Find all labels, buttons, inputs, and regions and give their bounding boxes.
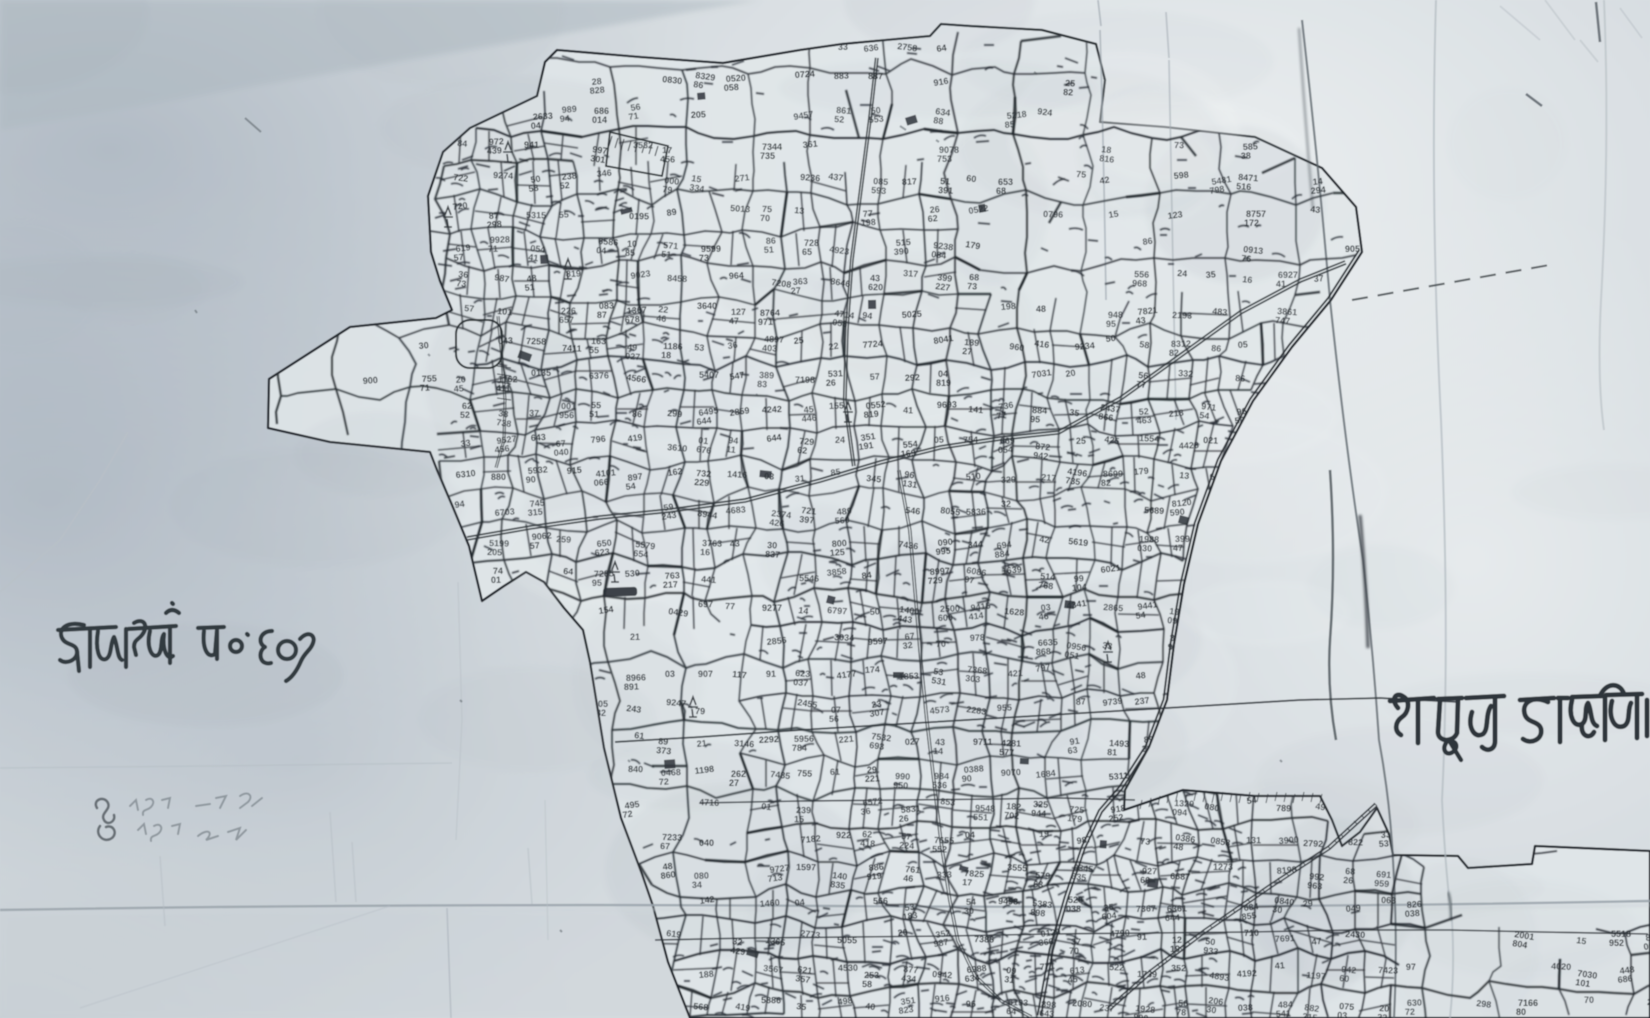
svg-text:47: 47 [1173, 543, 1183, 553]
svg-text:933: 933 [1203, 945, 1219, 957]
svg-text:56: 56 [829, 714, 839, 724]
svg-text:35: 35 [796, 1001, 807, 1012]
svg-text:891: 891 [624, 681, 639, 692]
svg-text:735: 735 [760, 151, 775, 161]
svg-text:4573: 4573 [929, 704, 950, 716]
svg-text:77: 77 [725, 601, 735, 611]
svg-text:101: 101 [1575, 977, 1591, 989]
svg-text:217: 217 [663, 579, 679, 590]
svg-text:96: 96 [966, 999, 976, 1009]
svg-text:1597: 1597 [796, 862, 816, 872]
svg-text:416: 416 [1034, 338, 1050, 350]
svg-text:038: 038 [1066, 904, 1081, 914]
svg-text:3532: 3532 [633, 140, 653, 150]
svg-text:237: 237 [1134, 695, 1150, 707]
svg-text:3610: 3610 [667, 442, 688, 454]
svg-text:855: 855 [1241, 910, 1257, 922]
svg-text:566: 566 [873, 896, 888, 906]
svg-text:24: 24 [835, 435, 845, 445]
svg-text:0195: 0195 [629, 211, 649, 221]
svg-text:014: 014 [592, 115, 607, 125]
svg-text:3146: 3146 [734, 738, 755, 749]
svg-text:72: 72 [1405, 1007, 1415, 1017]
svg-text:42: 42 [1099, 175, 1110, 186]
svg-text:4020: 4020 [1551, 961, 1572, 972]
svg-text:6797: 6797 [827, 605, 848, 616]
svg-text:90: 90 [961, 773, 972, 784]
svg-text:956: 956 [559, 410, 574, 420]
svg-text:702: 702 [1004, 810, 1020, 821]
svg-text:73: 73 [1174, 140, 1184, 150]
svg-text:05: 05 [934, 434, 945, 445]
svg-text:54: 54 [1135, 610, 1146, 621]
svg-text:221: 221 [838, 733, 854, 745]
svg-text:7386: 7386 [974, 934, 994, 945]
svg-text:963: 963 [1307, 880, 1323, 892]
svg-text:551: 551 [973, 812, 988, 823]
svg-text:3555: 3555 [1007, 862, 1028, 873]
svg-text:51: 51 [764, 244, 775, 255]
svg-text:90: 90 [525, 474, 536, 485]
svg-text:634: 634 [964, 972, 980, 984]
svg-text:73: 73 [456, 278, 467, 289]
svg-text:654: 654 [633, 548, 649, 560]
svg-text:20: 20 [1065, 368, 1076, 379]
svg-text:426: 426 [769, 517, 785, 529]
svg-text:676: 676 [696, 444, 712, 456]
svg-text:71: 71 [420, 382, 431, 393]
svg-text:89: 89 [666, 207, 677, 218]
svg-text:5689: 5689 [1144, 505, 1165, 516]
svg-text:446: 446 [801, 412, 817, 424]
svg-text:038: 038 [1238, 1002, 1254, 1013]
svg-text:5055: 5055 [837, 935, 857, 945]
svg-text:771: 771 [1039, 961, 1055, 972]
svg-text:298: 298 [486, 219, 502, 230]
svg-text:643: 643 [530, 432, 546, 443]
svg-text:86: 86 [1142, 236, 1153, 247]
svg-text:85: 85 [625, 248, 635, 258]
svg-text:357: 357 [795, 973, 811, 985]
svg-text:9274: 9274 [493, 170, 514, 181]
svg-text:828: 828 [589, 84, 605, 96]
svg-text:63: 63 [1033, 879, 1044, 890]
svg-text:67: 67 [660, 841, 670, 851]
svg-text:729: 729 [927, 575, 943, 586]
svg-text:0942: 0942 [932, 969, 953, 980]
svg-text:94: 94 [559, 113, 570, 124]
svg-text:03: 03 [665, 669, 675, 679]
svg-text:19: 19 [1039, 829, 1049, 839]
svg-text:0830: 0830 [662, 74, 683, 86]
svg-text:51: 51 [524, 282, 535, 293]
svg-text:924: 924 [1037, 106, 1053, 118]
svg-text:57: 57 [464, 303, 475, 314]
svg-text:58: 58 [528, 183, 539, 194]
svg-text:15: 15 [1108, 209, 1119, 220]
svg-text:5315: 5315 [526, 210, 546, 220]
svg-text:71: 71 [488, 244, 498, 254]
svg-text:546: 546 [905, 505, 921, 517]
svg-text:678: 678 [624, 314, 640, 325]
svg-text:09: 09 [1167, 615, 1178, 626]
svg-text:7182: 7182 [800, 833, 821, 845]
svg-text:41: 41 [1276, 279, 1286, 289]
svg-text:5546: 5546 [799, 573, 819, 584]
svg-text:01: 01 [491, 575, 501, 585]
svg-text:38: 38 [1241, 150, 1252, 161]
svg-text:64: 64 [936, 43, 947, 54]
svg-text:70: 70 [1069, 946, 1079, 956]
svg-text:97: 97 [1406, 962, 1416, 972]
svg-text:361: 361 [802, 138, 818, 150]
svg-text:9597: 9597 [867, 636, 888, 647]
svg-text:40: 40 [865, 1001, 876, 1012]
svg-text:1639: 1639 [1001, 564, 1022, 576]
svg-text:317: 317 [903, 268, 919, 279]
svg-text:35: 35 [1069, 407, 1080, 418]
svg-text:397: 397 [799, 514, 815, 526]
svg-text:1739: 1739 [1137, 969, 1157, 979]
svg-text:568: 568 [693, 1001, 709, 1013]
svg-text:70: 70 [936, 639, 946, 649]
svg-text:3640: 3640 [697, 301, 717, 311]
svg-text:68: 68 [996, 186, 1006, 196]
svg-text:298: 298 [1476, 998, 1492, 1010]
svg-text:434: 434 [901, 973, 917, 984]
svg-text:5311: 5311 [1108, 770, 1128, 782]
svg-text:45: 45 [453, 383, 464, 394]
svg-text:738: 738 [496, 417, 512, 429]
svg-text:162: 162 [667, 466, 683, 478]
svg-text:796: 796 [590, 433, 606, 445]
svg-text:959: 959 [1374, 878, 1390, 889]
svg-text:9070: 9070 [1001, 767, 1022, 778]
svg-text:84: 84 [457, 138, 468, 149]
svg-text:2080: 2080 [1072, 998, 1093, 1009]
svg-text:7485: 7485 [770, 769, 791, 781]
svg-text:7198: 7198 [795, 375, 815, 385]
svg-text:82: 82 [1101, 478, 1111, 488]
svg-text:593: 593 [871, 185, 887, 196]
svg-text:13: 13 [794, 205, 805, 216]
svg-text:91: 91 [766, 669, 776, 679]
svg-text:816: 816 [1099, 153, 1115, 165]
svg-text:34: 34 [692, 880, 702, 890]
svg-text:3567: 3567 [763, 963, 784, 975]
svg-text:907: 907 [698, 669, 713, 679]
svg-text:58: 58 [1139, 339, 1150, 350]
svg-text:65: 65 [802, 247, 812, 257]
svg-text:4192: 4192 [1237, 968, 1258, 979]
svg-text:4790: 4790 [1109, 928, 1130, 939]
svg-text:217: 217 [1041, 472, 1057, 483]
svg-text:5886: 5886 [761, 995, 781, 1005]
svg-text:735: 735 [1065, 475, 1081, 487]
svg-text:43: 43 [1135, 315, 1146, 326]
svg-text:60: 60 [966, 173, 977, 184]
svg-text:155: 155 [829, 400, 844, 411]
svg-text:54: 54 [625, 481, 636, 492]
svg-text:7423: 7423 [1378, 965, 1398, 976]
svg-text:117: 117 [732, 669, 747, 680]
svg-text:0135: 0135 [531, 368, 551, 378]
svg-text:301: 301 [590, 153, 606, 165]
svg-text:9277: 9277 [762, 603, 782, 613]
svg-text:86: 86 [1235, 373, 1246, 384]
svg-text:084: 084 [931, 249, 947, 261]
svg-text:78: 78 [1176, 1007, 1187, 1018]
svg-text:237: 237 [1099, 1002, 1115, 1014]
svg-text:205: 205 [487, 547, 502, 558]
svg-text:968: 968 [1132, 278, 1148, 289]
svg-text:82: 82 [1063, 87, 1074, 98]
svg-text:619: 619 [666, 928, 682, 940]
svg-text:52: 52 [834, 114, 845, 125]
svg-text:32: 32 [902, 640, 913, 651]
svg-text:47: 47 [1311, 936, 1322, 947]
svg-text:2865: 2865 [1103, 602, 1124, 613]
svg-text:62: 62 [927, 213, 938, 224]
svg-text:30: 30 [1206, 1004, 1217, 1015]
svg-text:42: 42 [1039, 534, 1050, 545]
svg-text:697: 697 [698, 599, 713, 609]
svg-text:131: 131 [1246, 835, 1261, 845]
svg-text:191: 191 [858, 440, 874, 452]
svg-text:7691: 7691 [1275, 933, 1296, 944]
svg-text:516: 516 [1236, 181, 1252, 192]
svg-text:960: 960 [1009, 341, 1025, 353]
svg-text:952: 952 [1609, 938, 1624, 948]
svg-text:390: 390 [893, 246, 909, 257]
svg-text:26: 26 [1343, 875, 1354, 886]
svg-text:747: 747 [1275, 315, 1291, 326]
svg-text:552: 552 [932, 844, 947, 855]
svg-text:55: 55 [558, 209, 569, 220]
svg-text:29: 29 [1302, 898, 1313, 909]
svg-text:131: 131 [902, 478, 918, 490]
svg-text:8458: 8458 [667, 273, 688, 284]
svg-text:54: 54 [1199, 410, 1210, 421]
svg-text:71: 71 [628, 111, 639, 122]
svg-text:72: 72 [659, 776, 670, 787]
svg-text:37: 37 [529, 408, 539, 418]
svg-text:819: 819 [863, 408, 879, 420]
svg-text:536: 536 [932, 780, 947, 790]
svg-text:18: 18 [661, 350, 671, 360]
svg-text:47: 47 [729, 316, 739, 326]
svg-text:72: 72 [622, 809, 633, 820]
svg-text:553: 553 [868, 113, 884, 125]
svg-text:51: 51 [589, 409, 599, 419]
svg-text:421: 421 [1007, 668, 1023, 679]
svg-text:784: 784 [792, 743, 807, 753]
svg-text:221: 221 [865, 773, 881, 784]
svg-text:14: 14 [798, 605, 809, 616]
svg-text:040: 040 [553, 447, 569, 458]
svg-text:987: 987 [1076, 834, 1092, 846]
svg-text:049: 049 [1345, 903, 1361, 914]
svg-text:17: 17 [962, 877, 973, 888]
svg-text:941: 941 [524, 140, 539, 150]
svg-text:79: 79 [662, 184, 673, 195]
svg-text:154: 154 [598, 604, 614, 616]
svg-text:41: 41 [1274, 960, 1285, 971]
svg-text:995: 995 [935, 545, 951, 557]
svg-text:27: 27 [729, 778, 739, 788]
svg-text:644: 644 [696, 415, 712, 427]
svg-text:13: 13 [1179, 470, 1190, 481]
svg-text:64: 64 [1006, 1006, 1017, 1017]
svg-text:483: 483 [1212, 306, 1228, 318]
svg-text:053: 053 [832, 317, 848, 329]
svg-text:4683: 4683 [725, 504, 746, 516]
svg-text:30: 30 [418, 340, 429, 351]
svg-text:104: 104 [1071, 582, 1087, 593]
svg-text:686: 686 [1617, 973, 1633, 985]
svg-text:944: 944 [1031, 808, 1047, 819]
svg-text:004: 004 [1643, 940, 1650, 952]
svg-text:60: 60 [1339, 973, 1350, 984]
svg-text:720: 720 [452, 200, 468, 212]
svg-text:817: 817 [902, 176, 918, 187]
svg-text:61: 61 [830, 767, 840, 777]
svg-text:77: 77 [996, 410, 1007, 421]
svg-text:6687: 6687 [1170, 871, 1191, 882]
svg-text:315: 315 [527, 506, 543, 518]
svg-text:373: 373 [656, 745, 672, 756]
svg-text:21: 21 [696, 738, 707, 749]
svg-text:86: 86 [1211, 343, 1222, 354]
svg-text:860: 860 [660, 869, 676, 881]
svg-text:922: 922 [836, 830, 851, 840]
svg-text:303: 303 [965, 673, 981, 685]
svg-text:7258: 7258 [526, 336, 546, 347]
svg-text:753: 753 [937, 154, 952, 164]
svg-text:4242: 4242 [762, 404, 783, 415]
svg-text:95: 95 [1106, 319, 1116, 329]
svg-text:16: 16 [1242, 274, 1253, 285]
svg-text:1554: 1554 [1139, 433, 1160, 444]
svg-text:955: 955 [997, 702, 1012, 713]
svg-text:403: 403 [762, 343, 777, 354]
svg-text:87: 87 [1075, 696, 1086, 707]
svg-text:094: 094 [1172, 807, 1188, 818]
svg-text:027: 027 [905, 736, 921, 747]
svg-text:560: 560 [834, 515, 850, 526]
svg-text:33: 33 [1377, 1012, 1388, 1018]
svg-text:57: 57 [529, 540, 540, 551]
svg-text:043: 043 [498, 335, 513, 346]
svg-text:5025: 5025 [901, 309, 922, 320]
svg-text:456: 456 [660, 154, 675, 165]
svg-text:53: 53 [694, 342, 705, 353]
svg-text:063: 063 [1381, 895, 1396, 906]
svg-text:636: 636 [863, 42, 879, 54]
svg-text:9247: 9247 [666, 697, 687, 709]
svg-text:4428: 4428 [1179, 440, 1200, 451]
svg-text:819: 819 [936, 378, 951, 388]
svg-text:352: 352 [1171, 963, 1186, 973]
svg-text:95: 95 [1030, 414, 1041, 425]
svg-text:224: 224 [899, 840, 915, 851]
svg-text:26: 26 [898, 813, 909, 824]
svg-text:142: 142 [699, 894, 715, 906]
svg-text:7367: 7367 [1136, 903, 1156, 914]
svg-text:63: 63 [1067, 745, 1078, 756]
svg-text:800: 800 [1133, 1012, 1149, 1018]
svg-text:70: 70 [760, 213, 770, 223]
svg-text:36: 36 [860, 806, 871, 817]
svg-text:25: 25 [1076, 436, 1086, 446]
svg-text:880: 880 [491, 472, 506, 482]
svg-text:101: 101 [497, 306, 513, 317]
svg-text:2792: 2792 [1303, 838, 1324, 849]
svg-text:27: 27 [962, 346, 973, 357]
svg-text:598: 598 [1173, 169, 1189, 181]
svg-text:456: 456 [494, 443, 510, 455]
svg-text:1460: 1460 [759, 897, 780, 909]
svg-text:01: 01 [761, 801, 772, 812]
svg-text:46: 46 [903, 873, 914, 884]
svg-text:6310: 6310 [455, 468, 476, 480]
svg-text:600: 600 [938, 612, 953, 623]
svg-text:27: 27 [790, 285, 801, 296]
svg-text:294: 294 [1310, 184, 1326, 196]
svg-text:183: 183 [902, 910, 918, 922]
svg-text:218: 218 [1168, 407, 1184, 419]
svg-text:040: 040 [699, 838, 714, 848]
svg-text:84: 84 [861, 570, 872, 581]
svg-text:62: 62 [797, 445, 808, 456]
svg-text:2430: 2430 [1345, 929, 1366, 940]
svg-text:70: 70 [1584, 995, 1594, 1005]
svg-text:229: 229 [694, 477, 710, 488]
svg-text:837: 837 [765, 549, 781, 560]
svg-text:443: 443 [897, 613, 913, 625]
svg-text:7724: 7724 [862, 338, 883, 350]
svg-text:577: 577 [999, 747, 1014, 758]
svg-text:905: 905 [1345, 244, 1360, 254]
svg-text:887: 887 [868, 71, 883, 81]
svg-text:259: 259 [556, 534, 572, 545]
svg-text:179: 179 [1067, 813, 1083, 824]
svg-text:97: 97 [964, 574, 975, 585]
svg-text:978: 978 [970, 632, 986, 643]
svg-text:964: 964 [729, 270, 745, 281]
svg-text:2292: 2292 [759, 734, 780, 745]
svg-text:9236: 9236 [800, 172, 821, 183]
svg-text:03: 03 [1337, 1010, 1348, 1018]
svg-text:429: 429 [730, 945, 746, 957]
svg-text:64: 64 [563, 566, 574, 577]
svg-text:299: 299 [667, 408, 683, 419]
svg-text:5619: 5619 [1068, 536, 1089, 548]
svg-text:5407: 5407 [699, 370, 719, 380]
svg-text:3858: 3858 [826, 566, 847, 578]
svg-text:51: 51 [661, 249, 672, 260]
svg-text:693: 693 [869, 740, 885, 752]
svg-text:73: 73 [967, 281, 978, 292]
svg-text:866: 866 [1098, 411, 1114, 423]
svg-text:94: 94 [454, 499, 465, 510]
svg-text:541: 541 [1276, 1008, 1292, 1018]
svg-text:411: 411 [496, 383, 511, 393]
svg-text:919: 919 [866, 870, 882, 882]
svg-text:4716: 4716 [699, 797, 720, 808]
svg-text:141: 141 [968, 404, 984, 415]
svg-text:81: 81 [1107, 747, 1118, 758]
